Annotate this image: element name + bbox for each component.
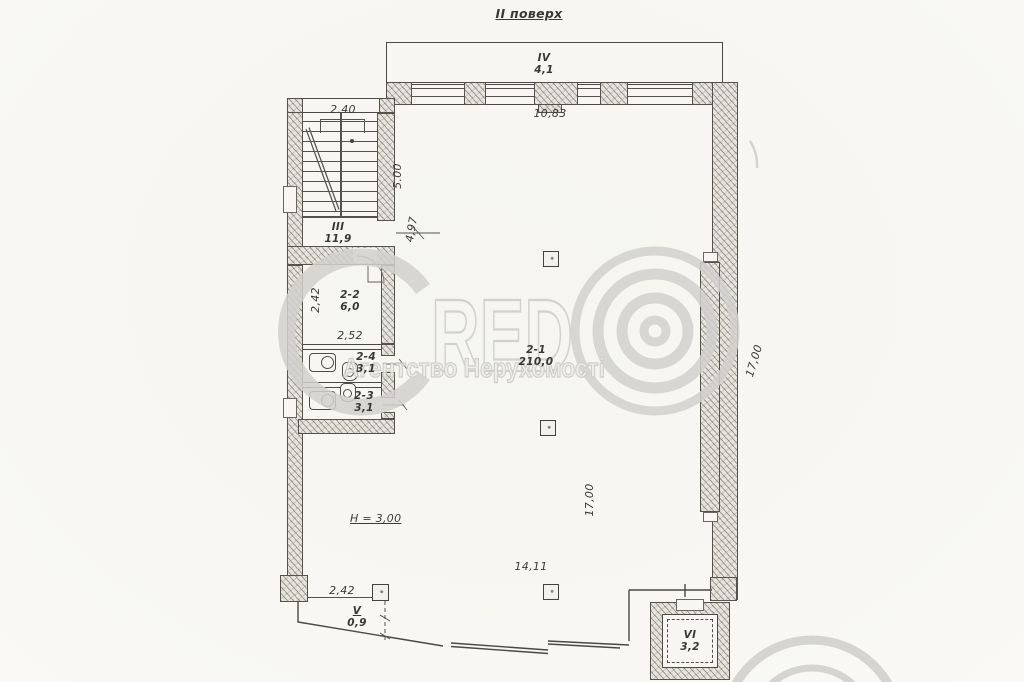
wall-pier [464, 82, 486, 105]
sink-bowl-icon [321, 394, 334, 407]
stair-top-wall-corner [287, 98, 303, 113]
room-id: 2-2 [340, 289, 360, 301]
left-wall-window [283, 398, 297, 418]
room-2-2-notch [368, 266, 381, 282]
dim-hall-depth-outer: 17,00 [742, 340, 766, 382]
room-label-2-4: 2-4 3,1 [350, 351, 382, 375]
room-label-v: V 0,9 [337, 605, 377, 629]
room-area: 4,1 [534, 64, 554, 76]
wall-pier [600, 82, 628, 105]
stair-top-wall-corner [379, 98, 395, 113]
floor-plan-canvas: RED Агентство Нерухомості ІІ поверх IV 4… [0, 0, 1024, 682]
room-area: 3,1 [354, 402, 374, 414]
terrace-dim-line [308, 597, 373, 598]
wc-right-wall [381, 344, 395, 356]
column [543, 251, 559, 267]
dim-terrace-width: 2,42 [317, 584, 367, 597]
stair-bottom-wall [287, 246, 395, 265]
room-area: 0,9 [347, 617, 367, 629]
column [543, 584, 559, 600]
room-area: 11,9 [324, 233, 351, 245]
room-label-2-3: 2-3 3,1 [348, 390, 380, 414]
room-area: 3,2 [680, 641, 700, 653]
wc-right-wall [381, 372, 395, 398]
room-area: 6,0 [340, 301, 360, 313]
dim-stair-depth: 5.00 [391, 155, 404, 197]
room-2-2-right-wall [381, 265, 395, 344]
landing-edge-line [303, 216, 377, 218]
room-id: V [353, 605, 361, 617]
terrace-dim-ticks [380, 601, 390, 641]
dim-ceiling-height: H = 3,00 [350, 512, 401, 525]
room-id: VI [684, 629, 697, 641]
room-label-iii: III 11,9 [321, 221, 355, 245]
room-label-iv: IV 4,1 [522, 52, 566, 76]
dim-hall-width: 14,11 [508, 560, 554, 573]
dim-landing-depth: 4,97 [402, 211, 421, 249]
room-label-2-1: 2-1 210,0 [508, 344, 564, 368]
stair-window [283, 186, 297, 213]
pilaster-step [703, 512, 718, 522]
corner-pier-bottom-right [710, 577, 737, 601]
room-label-vi: VI 3,2 [672, 629, 708, 653]
room-label-2-2: 2-2 6,0 [334, 289, 366, 313]
room-id: 2-4 [356, 351, 376, 363]
stair-handrail [320, 119, 365, 133]
room-area: 210,0 [519, 356, 554, 368]
room-id: III [332, 221, 345, 233]
room-id: 2-3 [354, 390, 374, 402]
watermark-letters: RED [431, 278, 573, 393]
room-id: IV [538, 52, 551, 64]
room-id: 2-1 [526, 344, 546, 356]
wc-bottom-wall [298, 419, 395, 434]
corner-pier-bottom-left [280, 575, 308, 602]
dim-room-2-2-depth: 2,42 [309, 282, 322, 318]
column [372, 584, 389, 601]
pilaster-step [703, 252, 718, 262]
wc-right-wall [381, 412, 395, 419]
dim-top-wall-width: 10,83 [518, 107, 582, 120]
wall-pier [534, 82, 578, 105]
page-title: ІІ поверх [479, 6, 579, 21]
column [540, 420, 556, 436]
door-opening [353, 248, 377, 263]
dim-room-2-2-width: 2,52 [328, 329, 372, 342]
room-area: 3,1 [356, 363, 376, 375]
elevator-door-opening [676, 599, 704, 611]
right-wall-pilaster [700, 262, 720, 512]
sink-bowl-icon [321, 356, 334, 369]
watermark-corner-arcs [724, 141, 900, 682]
dim-stair-width: 2.40 [320, 103, 366, 116]
dim-hall-depth-inner: 17,00 [583, 480, 596, 520]
